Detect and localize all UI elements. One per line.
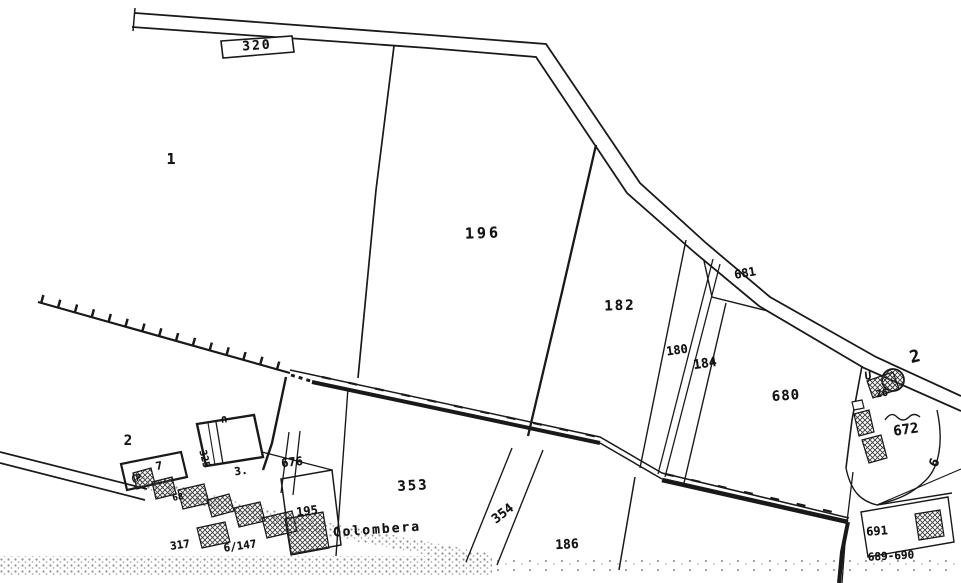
parcel-label-180: 180 xyxy=(665,342,688,359)
railway-tick-line xyxy=(38,299,290,373)
parcel-label-184: 184 xyxy=(692,355,717,373)
parcel-label-2-west: 2 xyxy=(124,433,132,449)
label-26: 26 xyxy=(875,388,889,401)
parcel-label-691: 691 xyxy=(866,523,889,538)
hatched-building xyxy=(854,410,874,436)
label-68: 68 xyxy=(172,492,184,504)
hatched-building xyxy=(285,512,329,555)
parcel-label-196: 196 xyxy=(465,223,502,242)
parcel-label-182: 182 xyxy=(604,297,636,314)
parcel-label-1: 1 xyxy=(166,150,175,168)
hatched-building xyxy=(915,510,944,540)
hatched-building xyxy=(862,435,887,463)
parcel-label-195: 195 xyxy=(295,503,318,520)
parcel-label-353: 353 xyxy=(397,477,429,495)
parcel-label-3: 3. xyxy=(234,464,249,479)
stream-squiggle xyxy=(885,415,920,421)
map-line-work xyxy=(0,0,961,583)
label-p: (P xyxy=(130,473,142,484)
symbol-u: U xyxy=(864,369,872,383)
parcel-label-186: 186 xyxy=(555,537,579,553)
map-canvas: 32011961821801846816802672626U27(P683253… xyxy=(0,0,961,583)
parcel-label-689-690: 689-690 xyxy=(868,548,915,563)
parcel-label-676: 676 xyxy=(280,454,303,470)
label-317: 317 xyxy=(169,537,190,553)
symbol-arch: ∩ xyxy=(220,412,228,426)
road-label-320: 320 xyxy=(242,37,272,54)
stippled-road-band xyxy=(0,481,961,566)
parcel-label-680: 680 xyxy=(771,387,800,405)
building-outline xyxy=(852,400,864,410)
main-road xyxy=(132,8,961,411)
